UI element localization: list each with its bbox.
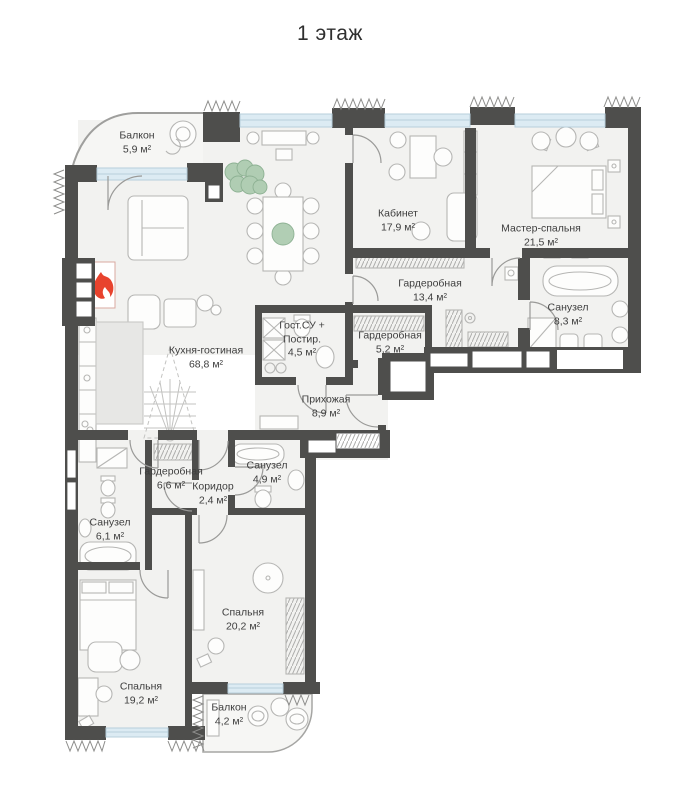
hall-closet-icon <box>336 433 380 449</box>
room-label-hallway: Прихожая 8,9 м² <box>302 393 351 420</box>
room-label-wardrobe-master: Гардеробная 13,4 м² <box>398 277 462 304</box>
room-label-bathroom-2: Санузел 4,9 м² <box>247 459 288 486</box>
floor-plan-page: 1 этаж <box>0 0 700 800</box>
room-label-bathroom-master: Санузел 8,3 м² <box>548 301 589 328</box>
room-label-kitchen-living: Кухня-гостиная 68,8 м² <box>169 344 243 371</box>
room-label-corridor: Коридор 2,4 м² <box>192 480 233 507</box>
wardrobe-rail-icon <box>154 444 192 460</box>
room-label-wardrobe-small: Гардеробная 5,2 м² <box>358 329 422 356</box>
kitchen-island-icon <box>96 322 143 424</box>
room-label-bedroom-3: Спальня 19,2 м² <box>120 680 162 707</box>
room-label-office: Кабинет 17,9 м² <box>378 207 418 234</box>
room-label-bedroom-2: Спальня 20,2 м² <box>222 606 264 633</box>
room-label-balcony-top: Балкон 5,9 м² <box>119 129 154 156</box>
console-table-icon <box>260 416 298 429</box>
sofa-icon <box>128 196 188 260</box>
room-label-guest-wc: Гост.СУ + Постир. 4,5 м² <box>269 320 335 361</box>
room-label-bathroom-3: Санузел 6,1 м² <box>90 516 131 543</box>
kitchen-counter-icon <box>79 318 96 462</box>
room-label-master-bedroom: Мастер-спальня 21,5 м² <box>501 222 581 249</box>
room-label-balcony-bottom: Балкон 4,2 м² <box>211 701 246 728</box>
